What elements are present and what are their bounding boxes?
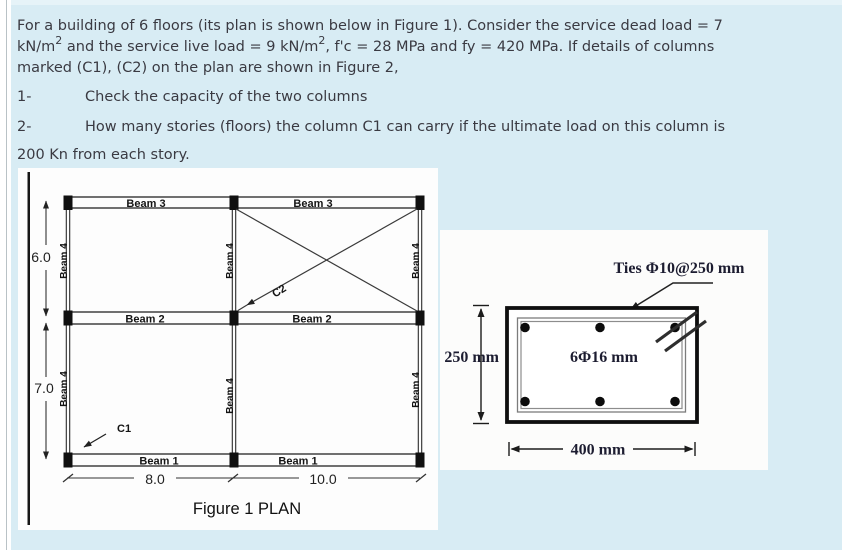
superscript-2: 2 [318,34,325,47]
question-item-2-continued: 200 Kn from each story. [17,145,190,166]
ties-annotation-label: Ties Φ10@250 mm [614,260,746,277]
problem-line-1: For a building of 6 floors (its plan is … [17,16,723,37]
figure1-plan-panel: Beam 3 Beam 3 Beam 2 Beam 2 Beam 1 Beam … [18,168,438,530]
beam4-label-mid-top: Beam 4 [225,243,236,279]
problem-line-2c: , f'c = 28 MPa and fy = 420 MPa. If deta… [325,39,714,55]
bottom-dimension-line [63,474,426,482]
figure2-section-drawing: Ties Φ10@250 mm 6Φ16 mm 250 mm 400 mm [440,230,768,470]
figure1-border-line [28,172,31,525]
beam4-label-left-bottom: Beam 4 [59,371,70,407]
page-edge-divider [6,0,7,550]
column-c1-label: C1 [117,423,131,435]
question-item-1: 1-Check the capacity of the two columns [17,87,367,108]
beam4-label-right-top: Beam 4 [411,243,422,279]
item-2-text: How many stories (floors) the column C1 … [85,119,725,135]
beam4-label-mid-bottom: Beam 4 [225,378,236,414]
problem-line-2: kN/m2 and the service live load = 9 kN/m… [17,37,714,58]
beam4-label-right-bottom: Beam 4 [411,372,422,408]
dim-6m-label: 6.0 [31,249,51,265]
c1-leader-arrow [84,434,106,447]
bars-label: 6Φ16 mm [570,349,639,366]
superscript-2: 2 [55,34,62,47]
dim-8m-label: 8.0 [145,471,165,487]
column-c2-label: C2 [270,283,288,301]
question-item-2: 2-How many stories (floors) the column C… [17,117,725,138]
item-2-number: 2- [17,117,85,138]
beam3-label-left: Beam 3 [126,198,165,210]
ties-leader-arrow [631,283,713,309]
problem-line-3: marked (C1), (C2) on the plan are shown … [17,58,399,79]
beam1-label-right: Beam 1 [278,456,317,468]
panel-diagonals [236,209,417,311]
beam2-label-left: Beam 2 [125,314,164,326]
figure1-plan-drawing: Beam 3 Beam 3 Beam 2 Beam 2 Beam 1 Beam … [18,168,438,530]
figure2-section-panel: Ties Φ10@250 mm 6Φ16 mm 250 mm 400 mm [440,230,768,470]
item-1-text: Check the capacity of the two columns [85,89,367,105]
height-dimension-label: 250 mm [444,349,499,366]
width-dimension-label: 400 mm [571,442,626,459]
item-1-number: 1- [17,87,85,108]
figure1-caption: Figure 1 PLAN [193,500,301,518]
beam2-label-right: Beam 2 [292,314,331,326]
beam1-label-left: Beam 1 [139,456,178,468]
beam3-label-right: Beam 3 [293,198,332,210]
problem-line-2a: kN/m [17,39,55,55]
beam4-label-left-top: Beam 4 [59,243,70,279]
dim-7m-label: 7.0 [34,380,54,396]
top-highlight-strip [11,0,842,5]
problem-line-2b: and the service live load = 9 kN/m [62,39,318,55]
dim-10m-label: 10.0 [309,471,336,487]
